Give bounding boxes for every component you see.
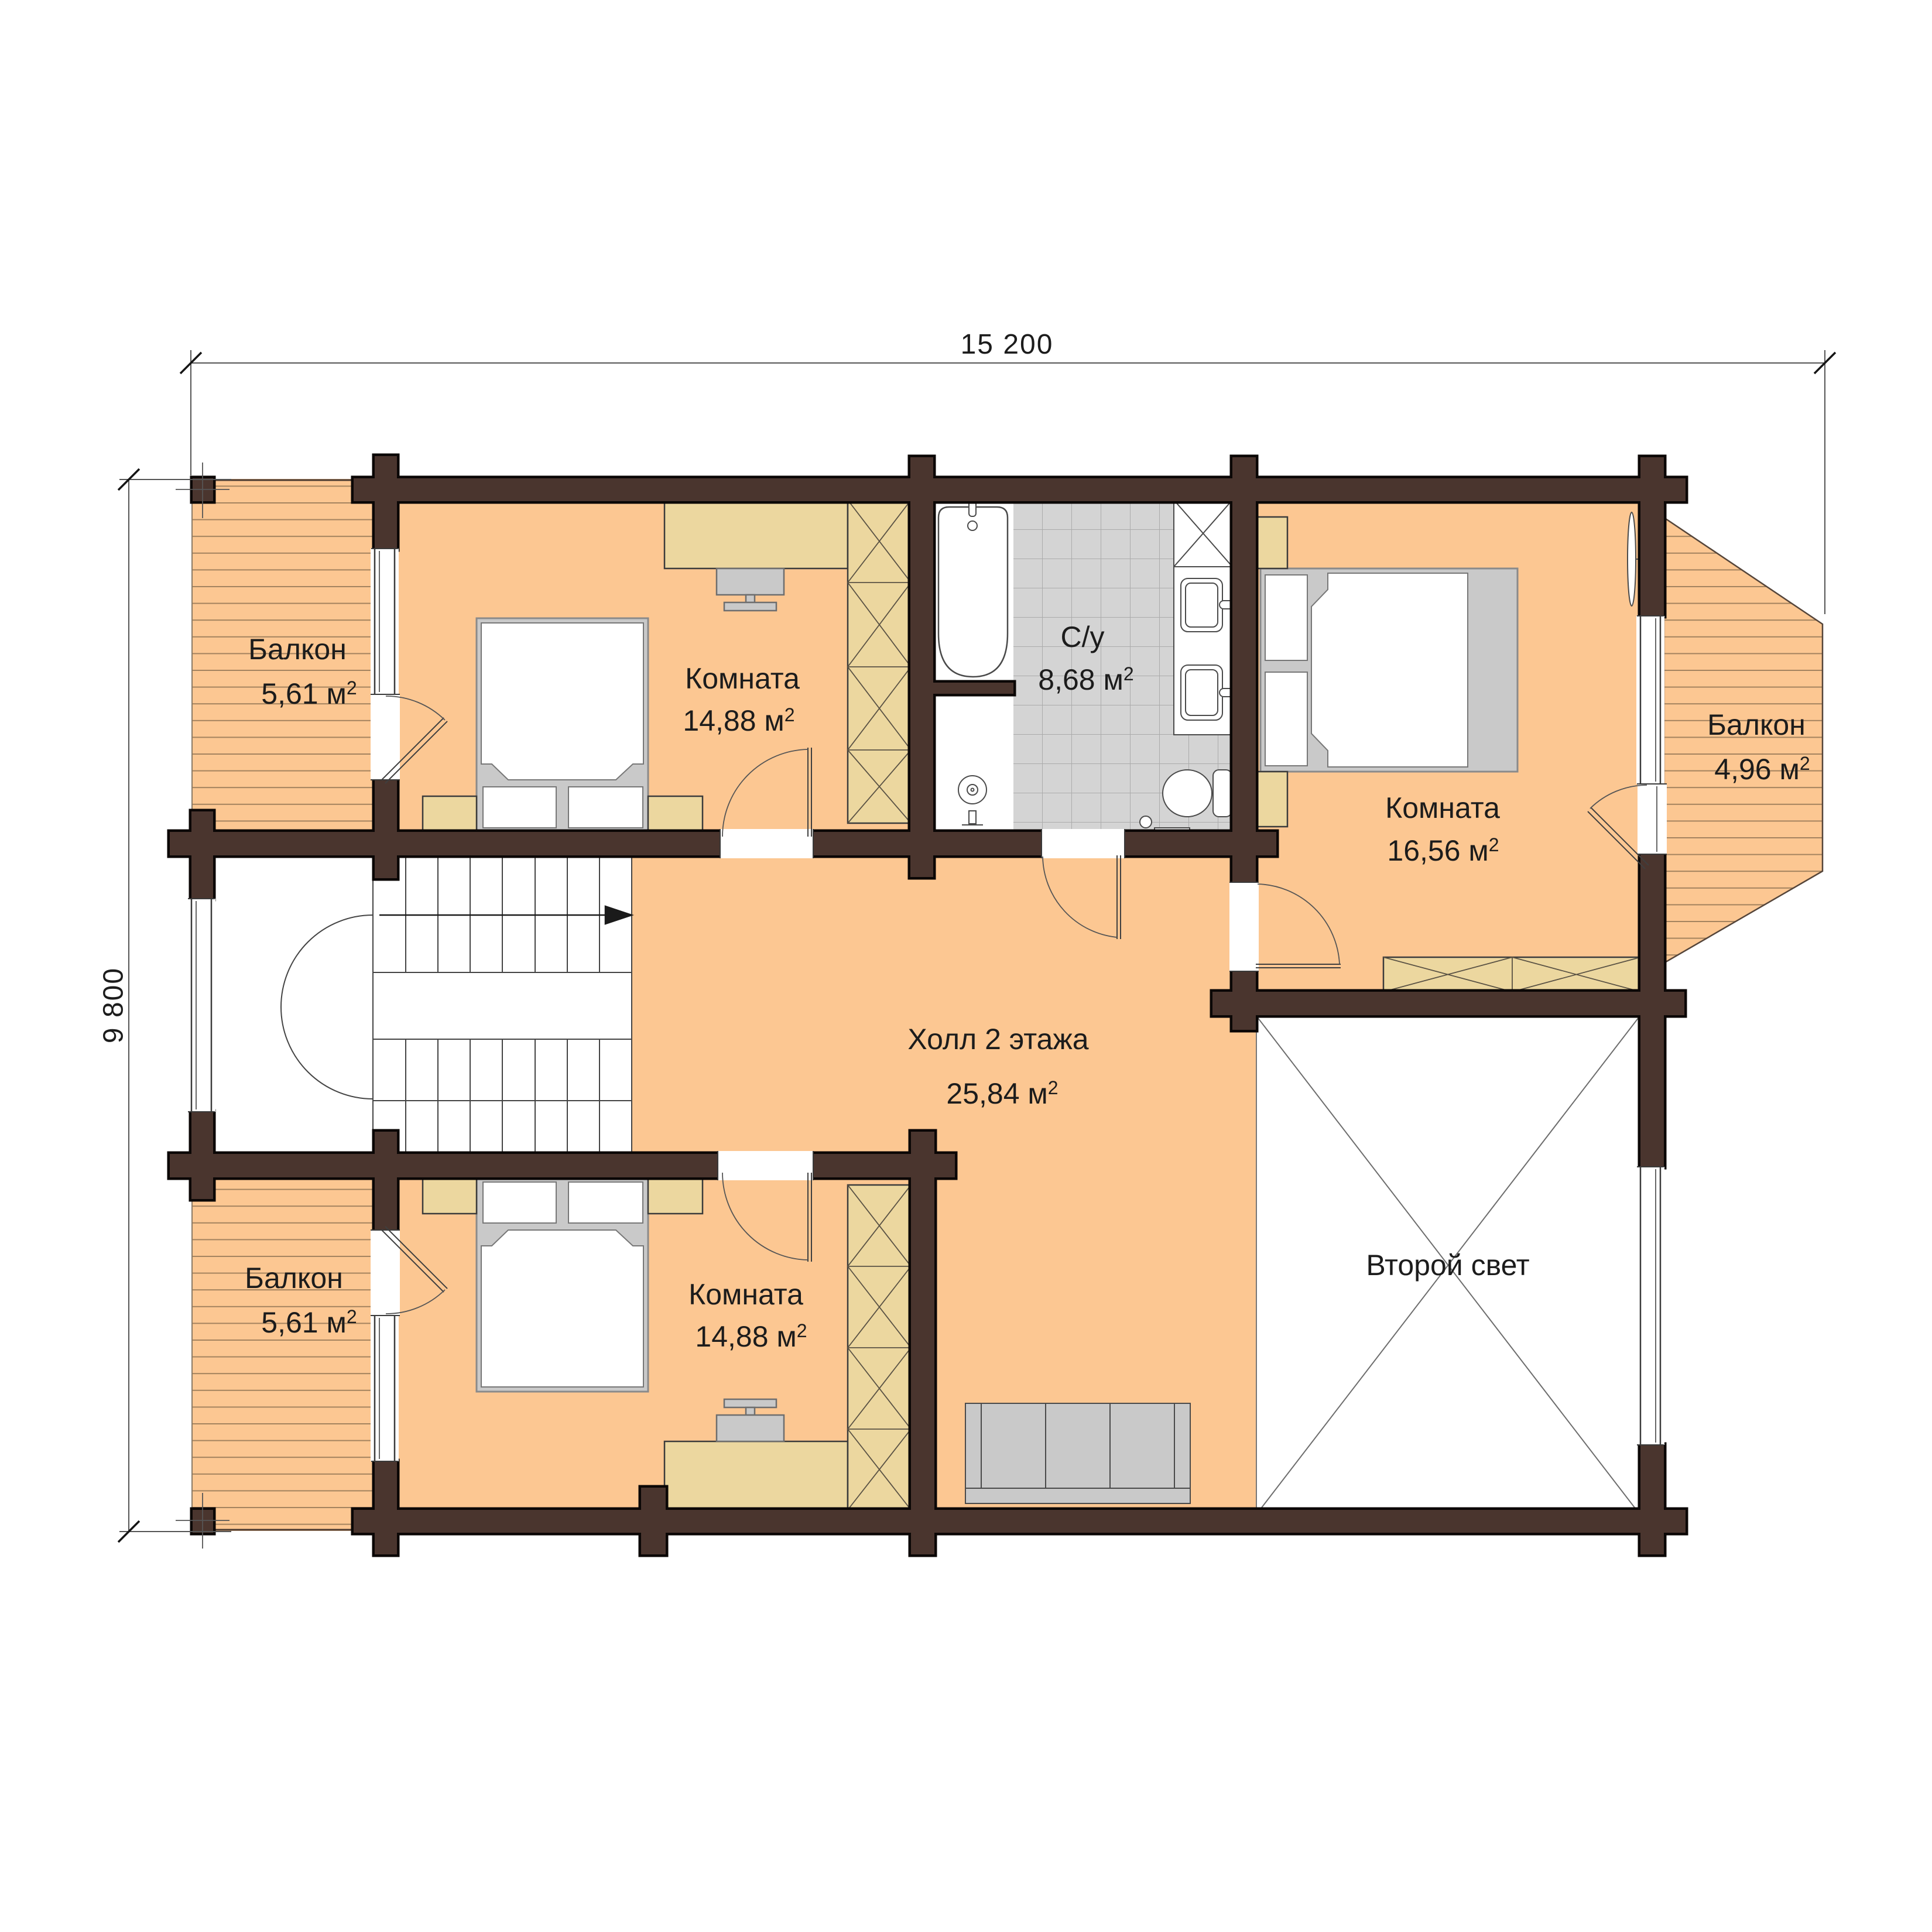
svg-text:16,56 м2: 16,56 м2 bbox=[1387, 834, 1499, 867]
svg-text:4,96 м2: 4,96 м2 bbox=[1714, 753, 1810, 786]
svg-text:8,68 м2: 8,68 м2 bbox=[1038, 663, 1133, 696]
svg-text:Комната: Комната bbox=[1385, 792, 1500, 824]
svg-text:Комната: Комната bbox=[688, 1278, 803, 1311]
svg-text:Второй свет: Второй свет bbox=[1366, 1249, 1529, 1282]
svg-text:Балкон: Балкон bbox=[248, 633, 347, 666]
svg-text:С/у: С/у bbox=[1061, 621, 1105, 653]
svg-text:Балкон: Балкон bbox=[245, 1262, 343, 1294]
svg-text:Холл 2 этажа: Холл 2 этажа bbox=[907, 1023, 1088, 1056]
svg-text:9 800: 9 800 bbox=[98, 967, 129, 1043]
svg-text:14,88 м2: 14,88 м2 bbox=[683, 704, 794, 737]
svg-text:15 200: 15 200 bbox=[961, 329, 1054, 360]
svg-text:14,88 м2: 14,88 м2 bbox=[695, 1320, 807, 1353]
svg-text:Балкон: Балкон bbox=[1707, 708, 1806, 741]
svg-text:5,61 м2: 5,61 м2 bbox=[261, 1306, 357, 1339]
svg-text:25,84 м2: 25,84 м2 bbox=[946, 1077, 1058, 1110]
svg-text:Комната: Комната bbox=[685, 662, 800, 695]
svg-text:5,61 м2: 5,61 м2 bbox=[261, 677, 357, 710]
